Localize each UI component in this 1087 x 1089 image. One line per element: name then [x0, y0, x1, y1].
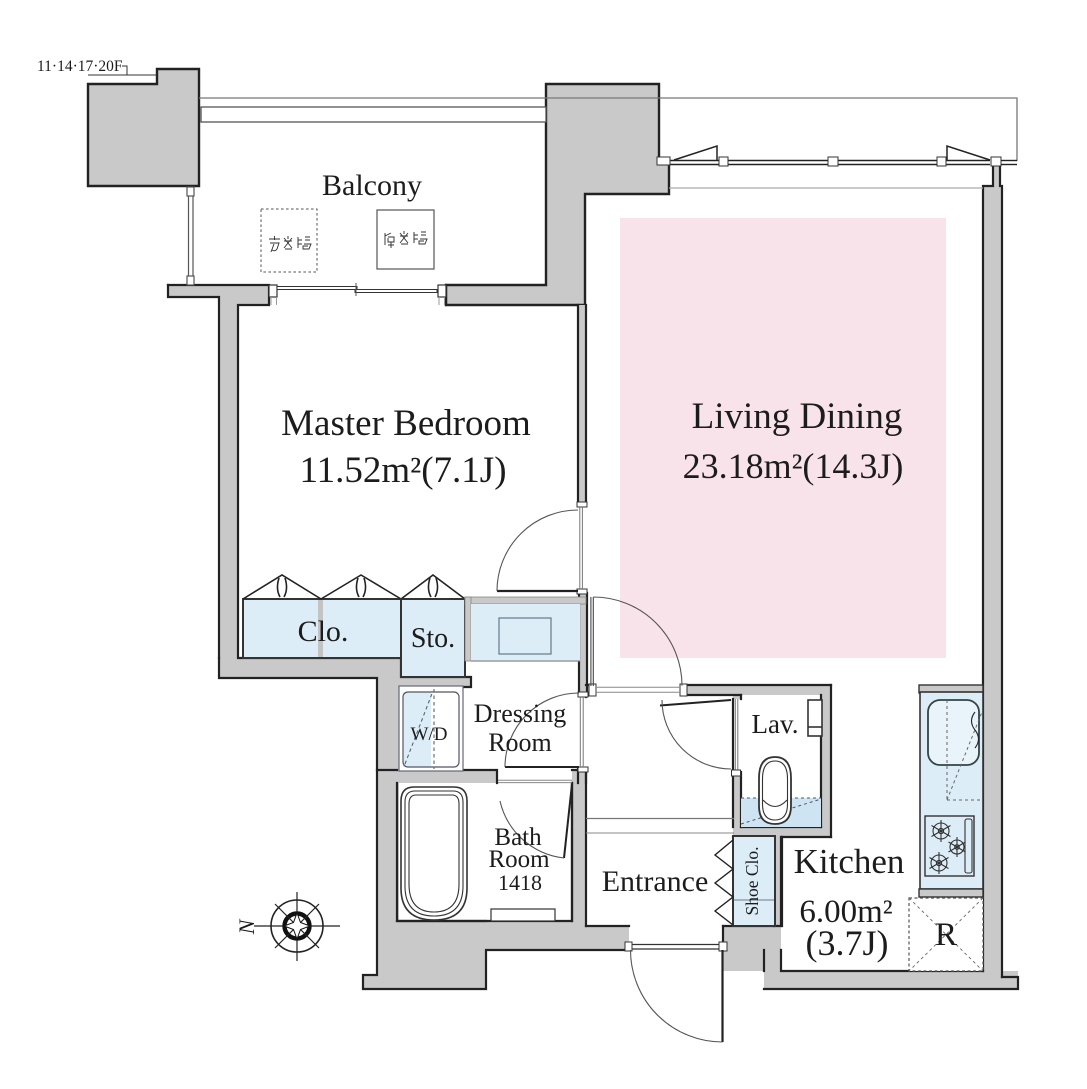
svg-text:Room: Room	[488, 846, 550, 873]
svg-text:Lav.: Lav.	[752, 709, 799, 739]
svg-text:Clo.: Clo.	[298, 615, 349, 648]
svg-text:11·14·17·20F: 11·14·17·20F	[37, 58, 123, 75]
svg-text:11.52m²(7.1J): 11.52m²(7.1J)	[299, 450, 506, 491]
svg-text:N: N	[234, 918, 259, 935]
svg-text:1418: 1418	[498, 870, 542, 895]
svg-text:W/D: W/D	[411, 724, 448, 745]
svg-text:Shoe Clo.: Shoe Clo.	[742, 846, 762, 915]
svg-text:Kitchen: Kitchen	[794, 842, 905, 881]
svg-text:23.18m²(14.3J): 23.18m²(14.3J)	[683, 446, 904, 486]
svg-text:Room: Room	[488, 728, 552, 757]
svg-text:(3.7J): (3.7J)	[806, 923, 889, 963]
svg-text:Master Bedroom: Master Bedroom	[281, 403, 531, 444]
svg-text:Entrance: Entrance	[602, 865, 709, 898]
svg-text:Living Dining: Living Dining	[692, 396, 903, 437]
svg-text:R: R	[935, 917, 957, 953]
svg-text:Balcony: Balcony	[322, 169, 422, 202]
svg-text:Dressing: Dressing	[474, 699, 566, 728]
svg-text:Sto.: Sto.	[411, 623, 455, 654]
